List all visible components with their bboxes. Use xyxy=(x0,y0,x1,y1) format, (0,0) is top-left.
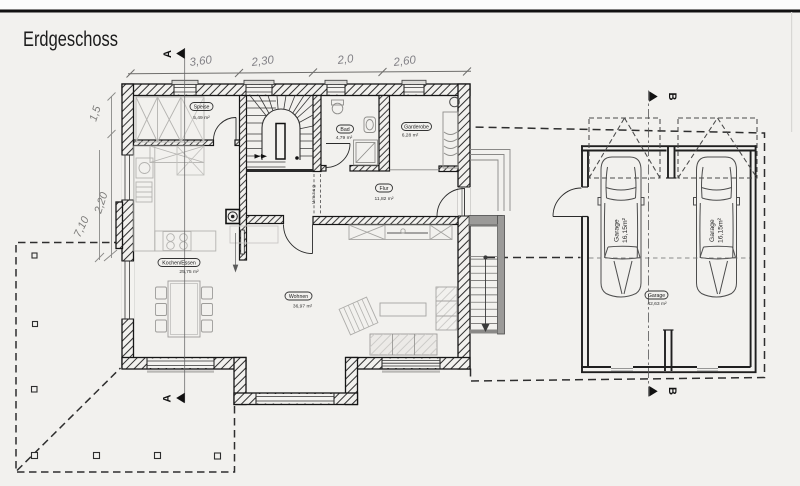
svg-text:A: A xyxy=(162,395,174,403)
svg-text:Umzug: Umzug xyxy=(311,185,316,204)
svg-text:Bad: Bad xyxy=(340,127,349,133)
svg-text:Garage: Garage xyxy=(709,219,716,242)
svg-text:2,0: 2,0 xyxy=(336,53,355,67)
svg-text:5,49 m²: 5,49 m² xyxy=(193,115,210,121)
svg-text:16,15m²: 16,15m² xyxy=(622,217,629,243)
svg-text:Garage: Garage xyxy=(614,219,621,242)
svg-text:6,28 m²: 6,28 m² xyxy=(402,133,419,139)
svg-text:11,82 m²: 11,82 m² xyxy=(375,196,394,202)
svg-text:Kochen/Essen: Kochen/Essen xyxy=(162,261,196,267)
svg-text:Wohnen: Wohnen xyxy=(289,294,308,300)
svg-text:25,75 m²: 25,75 m² xyxy=(179,269,199,275)
svg-text:Flur: Flur xyxy=(380,186,389,192)
svg-text:Erdgeschoss: Erdgeschoss xyxy=(23,28,118,51)
svg-text:Garderobe: Garderobe xyxy=(404,125,429,131)
svg-text:4,79 m²: 4,79 m² xyxy=(336,135,353,141)
svg-text:B: B xyxy=(666,93,678,101)
svg-text:42,63 m²: 42,63 m² xyxy=(647,301,667,307)
svg-text:B: B xyxy=(666,387,678,395)
svg-text:Garage: Garage xyxy=(648,293,665,299)
svg-text:Speise: Speise xyxy=(194,105,210,111)
svg-text:16,15m²: 16,15m² xyxy=(718,217,725,243)
svg-text:36,97 m²: 36,97 m² xyxy=(293,304,313,310)
svg-text:A: A xyxy=(162,50,174,58)
